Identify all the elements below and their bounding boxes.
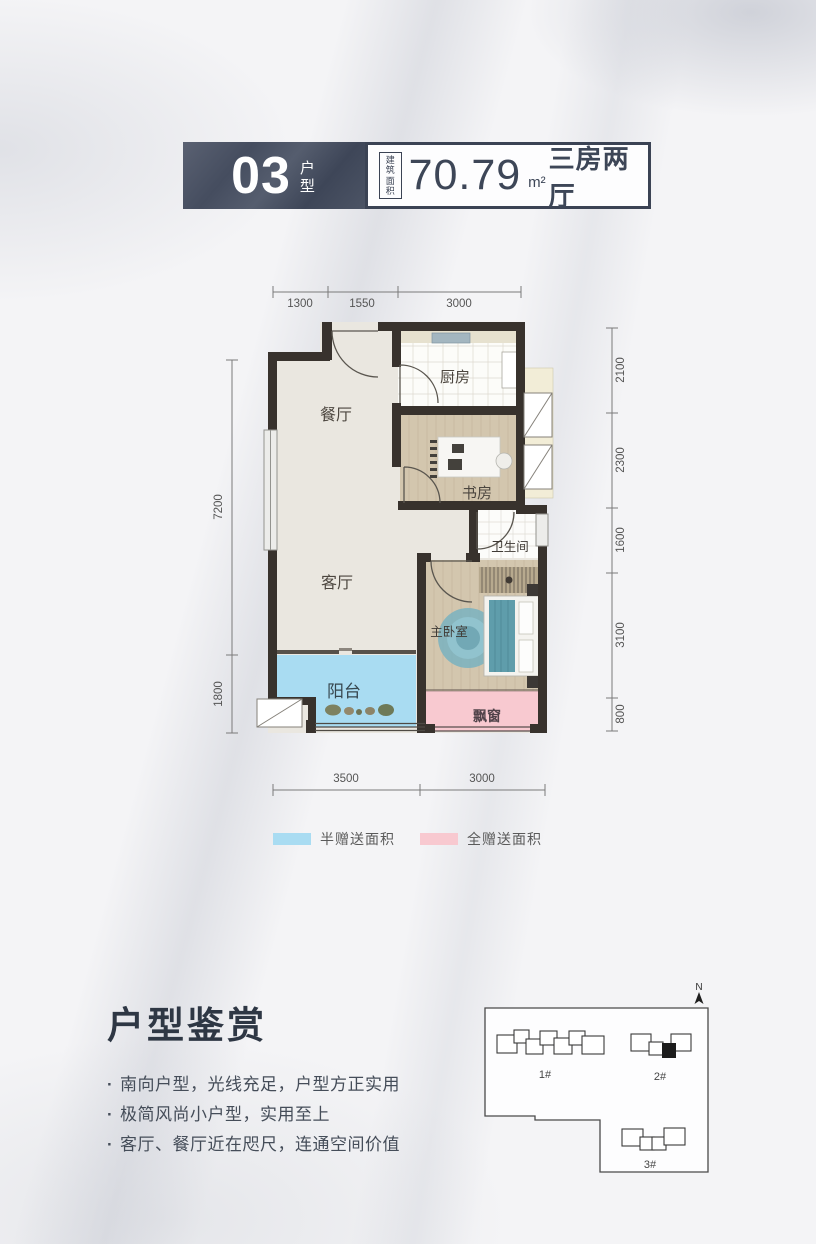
study-chair-round: [496, 453, 512, 469]
legend-full-gift: 全赠送面积: [420, 829, 542, 849]
highlighted-unit: [662, 1043, 676, 1058]
dim-top-2: 1550: [349, 298, 375, 310]
unit-header: 03 户型 建筑 面积 70.79 m² 三房两厅: [183, 142, 651, 209]
floorplan: 1300 1550 3000 3500 3000 7200 1800 2100 …: [205, 270, 635, 800]
north-arrow-icon: [695, 992, 704, 1004]
bay-window-sill: [425, 689, 539, 692]
half-gift-swatch: [273, 833, 311, 845]
dim-left-2: 1800: [213, 681, 225, 707]
building-3-label: 3#: [644, 1159, 657, 1171]
living-label: 客厅: [321, 574, 353, 592]
bathroom-label: 卫生间: [491, 540, 529, 554]
bullet-marker: ·: [107, 1135, 120, 1155]
bullet-text: 南向户型，光线充足，户型方正实用: [120, 1070, 400, 1095]
north-label: N: [695, 982, 702, 993]
master-bedroom-label: 主卧室: [430, 624, 468, 639]
unit-type-label: 户型: [296, 160, 317, 196]
kitchen-fridge: [502, 352, 517, 388]
dim-right-2: 2300: [615, 447, 627, 473]
north-indicator: N: [695, 982, 704, 1004]
full-gift-swatch: [420, 833, 458, 845]
bullet-item: · 客厅、餐厅近在咫尺，连通空间价值: [107, 1130, 400, 1160]
dining-label: 餐厅: [320, 406, 352, 424]
area-prefix-line1: 建筑: [382, 155, 399, 176]
legend-half-gift: 半赠送面积: [273, 829, 395, 849]
unit-number-block: 03 户型: [183, 142, 365, 209]
appreciation-title: 户型鉴赏: [107, 995, 267, 1049]
dim-top-1: 1300: [287, 298, 313, 310]
bullet-text: 极简风尚小户型，实用至上: [120, 1100, 330, 1125]
bullet-item: · 极简风尚小户型，实用至上: [107, 1100, 400, 1130]
kitchen-label: 厨房: [440, 369, 470, 386]
full-gift-label: 全赠送面积: [467, 829, 542, 849]
unit-number: 03: [231, 150, 291, 202]
bullet-marker: ·: [107, 1075, 120, 1095]
building-2-label: 2#: [654, 1071, 667, 1083]
appreciation-bullets: · 南向户型，光线充足，户型方正实用 · 极简风尚小户型，实用至上 · 客厅、餐…: [107, 1070, 400, 1160]
bedroom-bed: [484, 584, 540, 688]
dim-left-1: 7200: [213, 494, 225, 520]
half-gift-label: 半赠送面积: [320, 829, 395, 849]
study-desk: [438, 437, 500, 477]
study-label: 书房: [462, 485, 492, 502]
dim-bottom-2: 3000: [469, 773, 495, 785]
area-prefix-line2: 面积: [382, 176, 399, 197]
area-prefix-box: 建筑 面积: [379, 152, 402, 199]
area-unit: m²: [528, 174, 546, 191]
area-block: 建筑 面积 70.79 m² 三房两厅: [365, 142, 651, 209]
siteplan: N 1# 2# 3#: [470, 965, 720, 1200]
bullet-text: 客厅、餐厅近在咫尺，连通空间价值: [120, 1130, 400, 1155]
dim-right-4: 3100: [615, 622, 627, 648]
layout-type: 三房两厅: [549, 139, 648, 213]
bullet-item: · 南向户型，光线充足，户型方正实用: [107, 1070, 400, 1100]
balcony-label: 阳台: [327, 682, 361, 701]
dim-right-3: 1600: [615, 527, 627, 553]
dim-right-5: 800: [615, 704, 627, 723]
room-study: [400, 415, 518, 505]
bay-window-label: 飘窗: [473, 708, 501, 724]
kitchen-sink: [432, 333, 470, 343]
dim-bottom-1: 3500: [333, 773, 359, 785]
building-1-label: 1#: [539, 1069, 552, 1081]
page: 03 户型 建筑 面积 70.79 m² 三房两厅: [0, 0, 816, 1244]
dim-right-1: 2100: [615, 357, 627, 383]
dim-top-3: 3000: [446, 298, 472, 310]
bullet-marker: ·: [107, 1105, 120, 1125]
area-value: 70.79: [409, 151, 522, 200]
